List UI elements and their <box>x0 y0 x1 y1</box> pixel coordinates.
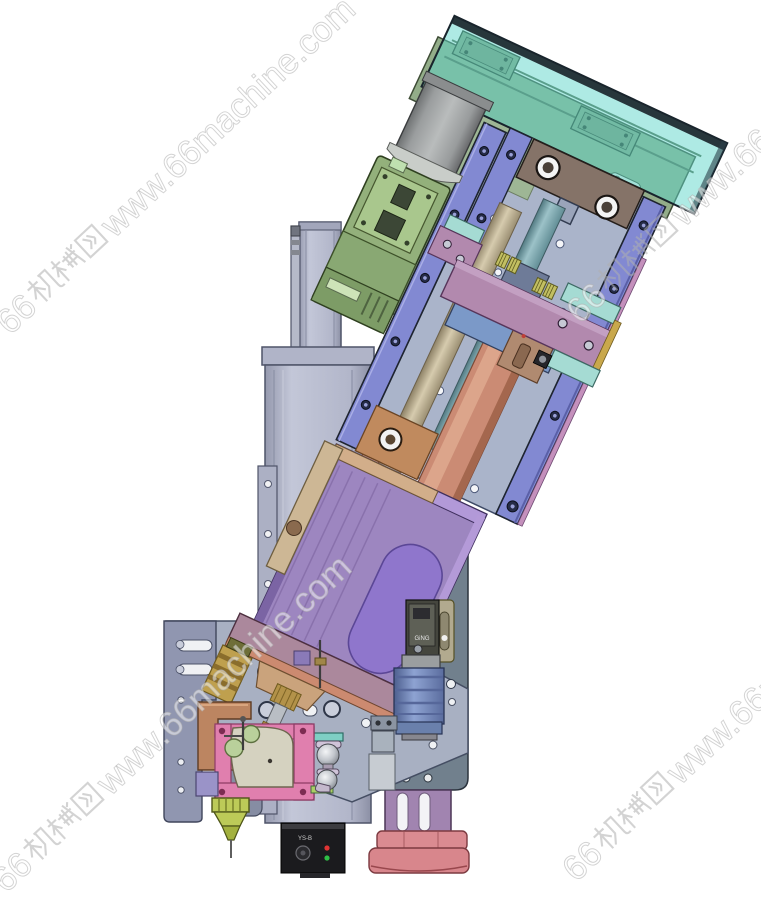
svg-text:YS-B: YS-B <box>298 836 312 842</box>
svg-text:GiNG: GiNG <box>415 636 430 642</box>
